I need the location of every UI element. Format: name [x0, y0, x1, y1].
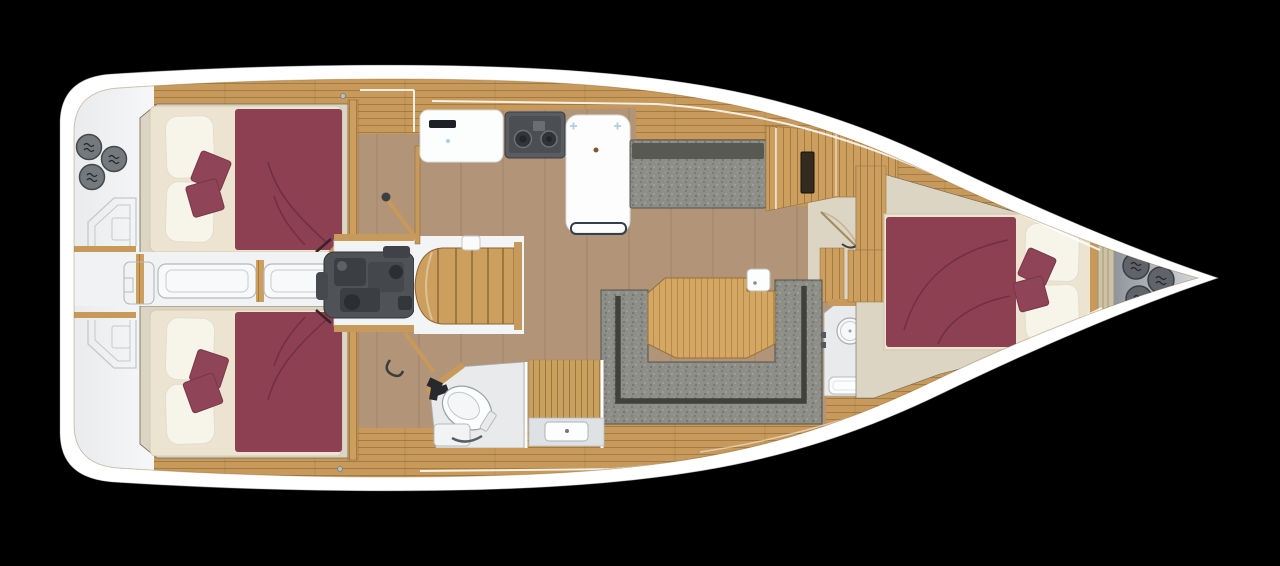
galley-island: [566, 115, 630, 234]
counter-control-strip: [429, 120, 456, 128]
winch-icon: [77, 135, 102, 160]
wardrobe: [848, 250, 886, 302]
aft-cabin-starboard: [140, 306, 358, 472]
settee-port: [630, 140, 766, 208]
electrical-panel: [801, 152, 814, 193]
floorplan-stage: [0, 0, 1280, 566]
stove: [505, 112, 565, 158]
engine: [316, 246, 414, 318]
winch-icon: [102, 147, 127, 172]
porthole-dot: [338, 467, 343, 472]
table-item: [747, 269, 770, 291]
duvet-starboard: [235, 312, 342, 452]
galley-counter: [420, 110, 503, 162]
porthole-dot: [341, 94, 346, 99]
tap-dot: [565, 429, 569, 433]
winch-icon: [80, 165, 105, 190]
companionway-hatch-box: [462, 236, 480, 250]
bow-locker: [1098, 200, 1234, 370]
locker-panel: [158, 264, 256, 298]
faucet-dot: [446, 139, 450, 143]
wardrobe: [856, 166, 886, 250]
aft-cabin-port: [140, 94, 358, 259]
yacht-floorplan: [0, 0, 1280, 566]
compression-post: [415, 146, 420, 244]
shower-floor: [529, 360, 600, 418]
bulkhead: [820, 248, 844, 302]
duvet-port: [235, 109, 342, 250]
